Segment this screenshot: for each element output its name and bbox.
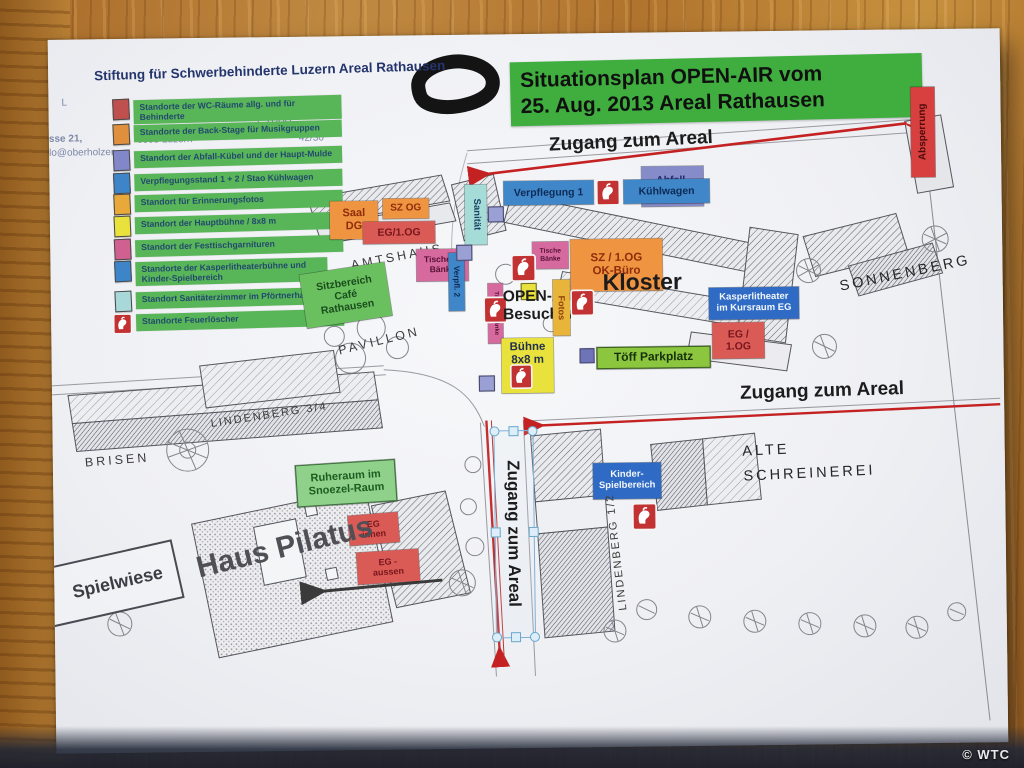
selection-handle <box>508 426 518 436</box>
site-plan-paper: Stiftung für Schwerbehinderte Luzern Are… <box>48 28 1009 754</box>
faint-address-2: lo@oberholzer- <box>49 147 118 159</box>
verpfl-2-box: Verpfl. 2 <box>448 253 465 311</box>
kasperlitheater-box: Kasperlitheater im Kursraum EG <box>709 287 799 320</box>
legend-label: Standort der Hauptbühne / 8x8 m <box>135 212 343 234</box>
legend-swatch-sanitaeter <box>114 291 132 313</box>
abfall-marker <box>479 375 495 391</box>
ruheraum-box: Ruheraum im Snoezel-Raum <box>295 459 398 507</box>
selection-handle <box>492 632 502 642</box>
selection-handle <box>530 632 540 642</box>
legend-swatch-wc <box>112 99 130 121</box>
selection-handle <box>491 527 501 537</box>
selection-handle <box>527 426 537 436</box>
fire-extinguisher-icon <box>510 254 536 282</box>
label-alte-schreinerei: ALTE SCHREINEREI <box>742 433 876 488</box>
selection-handle <box>529 527 539 537</box>
legend-row-hauptbuehne: Standort der Hauptbühne / 8x8 m <box>114 213 343 237</box>
legend-label: Standorte der Back-Stage für Musikgruppe… <box>134 120 342 142</box>
legend-row-fotos: Standort für Erinnerungsfotos <box>114 191 343 215</box>
legend-swatch-hauptbuehne <box>113 216 131 238</box>
arrow-zugang-right <box>528 404 1000 426</box>
eg-1og-amtshaus-box: EG/1.OG <box>363 221 435 244</box>
kuehlwagen-box: Kühlwagen <box>623 179 709 204</box>
legend-row-backstage: Standorte der Back-Stage für Musikgruppe… <box>113 121 342 145</box>
legend-row-kasperli: Standorte der Kasperlitheaterbühne und K… <box>114 258 327 285</box>
legend-swatch-verpflegung <box>113 173 131 195</box>
legend-swatch-abfall <box>113 150 131 172</box>
building-lindenberg12-s <box>538 527 615 638</box>
sanitaet-box: Sanität <box>464 184 487 244</box>
fire-extinguisher-icon <box>595 179 620 206</box>
fire-extinguisher-icon <box>113 313 132 335</box>
abfall-marker <box>456 245 472 261</box>
label-spielwiese: Spielwiese <box>70 562 164 603</box>
photo-bottom-shadow <box>0 726 1024 768</box>
legend-swatch-kasperli <box>114 261 132 283</box>
label-zugang-vertical: Zugang zum Areal <box>497 433 531 633</box>
legend-label: Standort der Abfall-Kübel und der Haupt-… <box>134 146 342 168</box>
verpflegung-1-box: Verpflegung 1 <box>503 180 593 205</box>
legend-label: Standort für Erinnerungsfotos <box>134 190 342 212</box>
fire-extinguisher-icon <box>631 502 657 530</box>
tische-baenke-box: Tische Bänke <box>532 241 568 268</box>
abfall-marker <box>488 206 504 222</box>
legend-label: Standort der Festtischgarnituren <box>135 235 343 257</box>
selection-handle <box>489 426 499 436</box>
photo-credit: © WTC <box>962 747 1010 762</box>
legend-row-abfall: Standort der Abfall-Kübel und der Haupt-… <box>113 147 342 171</box>
label-kloster: Kloster <box>603 268 683 296</box>
plan-title: Situationsplan OPEN-AIR vom 25. Aug. 201… <box>510 53 923 126</box>
fire-extinguisher-icon <box>570 289 595 316</box>
legend-label: Standorte der Kasperlitheaterbühne und K… <box>135 257 328 286</box>
legend-swatch-fotos <box>113 194 131 216</box>
eg-aussen-box: EG - aussen <box>356 549 420 585</box>
faint-mark-l: L <box>61 98 67 109</box>
legend-label: Verpflegungsstand 1 + 2 / Stao Kühlwagen <box>134 169 342 191</box>
fotos-box: Fotos <box>553 279 571 335</box>
legend-row-festtisch: Standort der Festtischgarnituren <box>114 236 343 260</box>
eg-1og-kloster-box: EG / 1.OG <box>712 322 764 359</box>
legend-swatch-backstage <box>112 124 130 146</box>
sz-og-box: SZ OG <box>383 198 429 219</box>
abfall-marker <box>579 348 594 363</box>
legend-row-wc: Standorte der WC-Räume allg. und für Beh… <box>112 96 341 123</box>
photo-of-site-plan: { "photo": { "credit": "© WTC" }, "color… <box>0 0 1024 768</box>
zugang-vertical-selection: Zugang zum Areal <box>493 430 536 638</box>
fire-extinguisher-icon <box>510 364 533 389</box>
faint-address-1: sse 21, <box>49 133 83 144</box>
legend-swatch-festtisch <box>114 239 132 261</box>
absperrung-sign: Absperrung <box>910 87 935 177</box>
selection-handle <box>511 632 521 642</box>
toeff-parkplatz-box: Töff Parkplatz <box>596 346 710 369</box>
